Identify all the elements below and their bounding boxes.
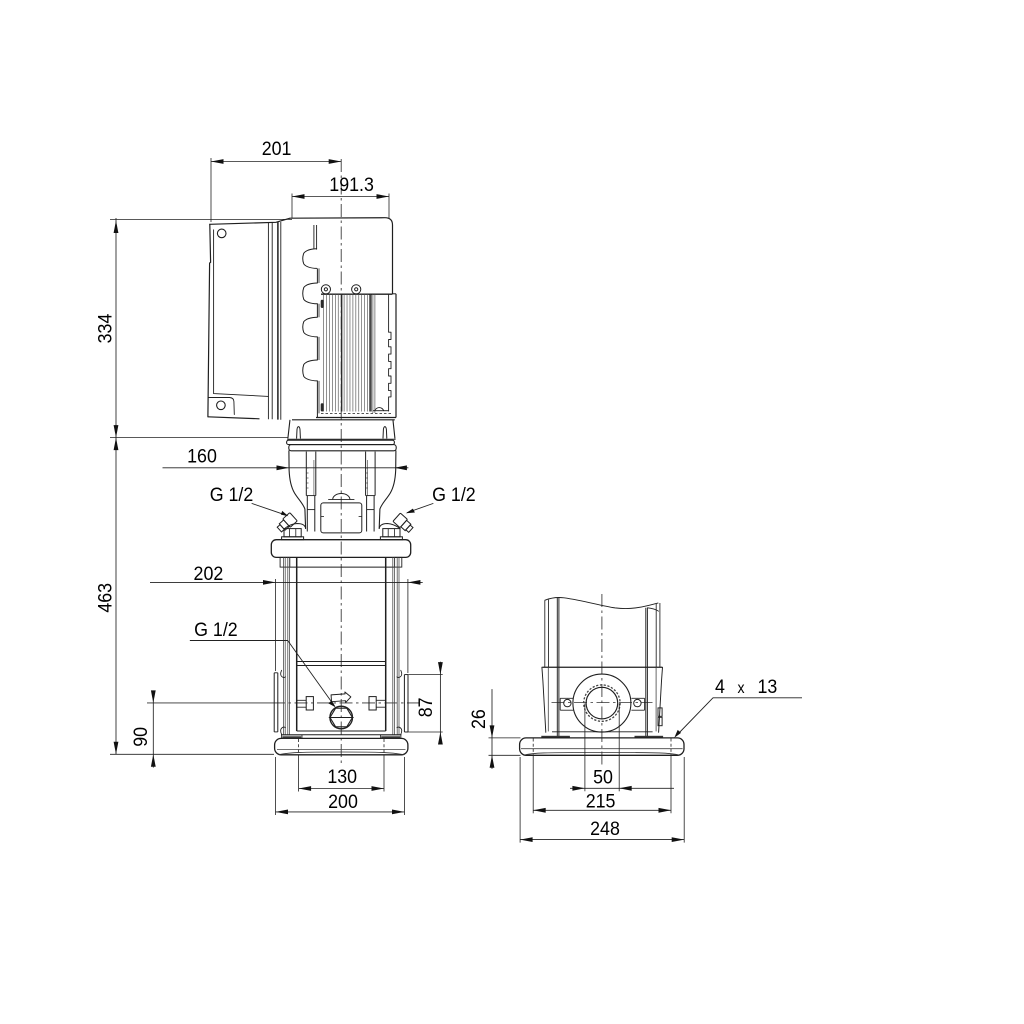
svg-text:26: 26: [467, 709, 489, 729]
svg-text:x: x: [737, 680, 745, 697]
svg-text:G 1/2: G 1/2: [194, 618, 238, 640]
svg-text:201: 201: [262, 137, 292, 159]
svg-text:202: 202: [194, 562, 224, 584]
svg-text:50: 50: [593, 766, 613, 788]
svg-text:87: 87: [414, 697, 436, 717]
svg-text:90: 90: [129, 727, 151, 747]
svg-text:334: 334: [94, 314, 116, 344]
svg-text:4: 4: [715, 675, 725, 697]
svg-text:248: 248: [590, 817, 620, 839]
svg-text:160: 160: [187, 445, 217, 467]
svg-text:13: 13: [757, 675, 777, 697]
svg-text:130: 130: [327, 765, 357, 787]
svg-text:G 1/2: G 1/2: [210, 483, 254, 505]
svg-text:215: 215: [586, 790, 616, 812]
svg-text:G 1/2: G 1/2: [432, 483, 476, 505]
svg-text:200: 200: [328, 790, 358, 812]
svg-text:463: 463: [94, 583, 116, 613]
svg-text:191.3: 191.3: [329, 173, 374, 195]
